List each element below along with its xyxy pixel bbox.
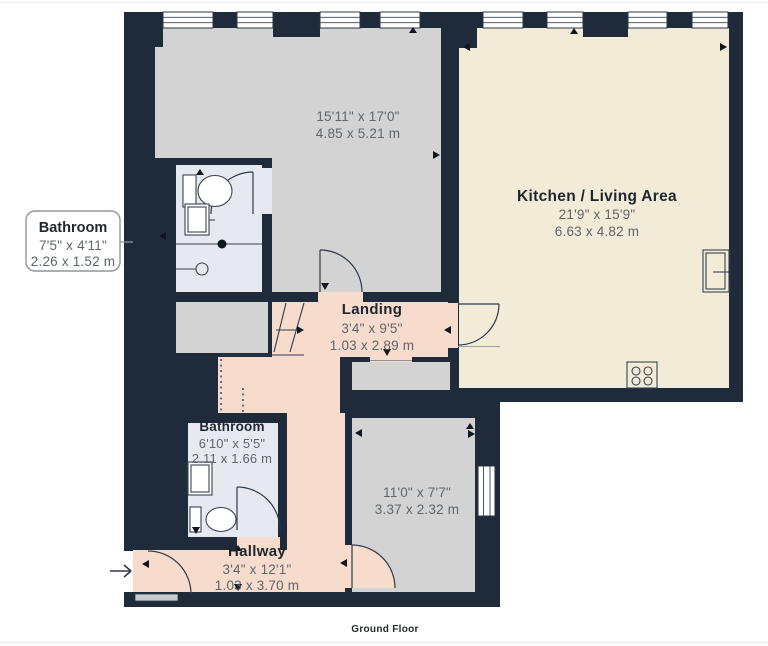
room-dims-metric: 6.63 x 4.82 m bbox=[555, 224, 639, 239]
alcove-opening bbox=[370, 357, 412, 362]
stair-corridor bbox=[218, 357, 340, 413]
room-title: Kitchen / Living Area bbox=[517, 188, 677, 205]
window-icon bbox=[163, 12, 213, 28]
room-title: Hallway bbox=[228, 543, 286, 560]
floor-plan-viewport: Bathroom 7'5" x 4'11" 2.26 x 1.52 m 15'1… bbox=[0, 0, 768, 646]
wall-pier bbox=[583, 28, 628, 37]
room-dims-metric: 4.85 x 5.21 m bbox=[316, 126, 400, 141]
callout-dims-imperial: 7'5" x 4'11" bbox=[39, 238, 107, 253]
window-icon bbox=[320, 12, 360, 28]
room-dims-imperial: 3'4" x 9'5" bbox=[341, 321, 402, 336]
landing-label: Landing 3'4" x 9'5" 1.03 x 2.89 m bbox=[330, 301, 414, 353]
floor-title: Ground Floor bbox=[351, 624, 418, 635]
toilet-symbol bbox=[183, 175, 232, 207]
room-dims-imperial: 21'9" x 15'9" bbox=[559, 207, 636, 222]
window-icon bbox=[547, 12, 583, 28]
entry-threshold bbox=[135, 594, 178, 601]
corridor bbox=[287, 413, 345, 550]
room-dims-metric: 3.37 x 2.32 m bbox=[375, 502, 459, 517]
room-dims-imperial: 6'10" x 5'5" bbox=[199, 436, 266, 451]
room-dims-metric: 1.03 x 2.89 m bbox=[330, 338, 414, 353]
callout-title: Bathroom bbox=[39, 220, 107, 236]
room-dims-imperial: 11'0" x 7'7" bbox=[383, 485, 451, 500]
window-icon bbox=[692, 12, 728, 28]
room-dims-imperial: 15'11" x 17'0" bbox=[316, 109, 399, 124]
wall-pier bbox=[441, 12, 477, 48]
window-icon bbox=[628, 12, 667, 28]
storage-alcove bbox=[352, 362, 450, 390]
floor-plan-svg: Bathroom 7'5" x 4'11" 2.26 x 1.52 m 15'1… bbox=[0, 0, 768, 646]
wall-pier bbox=[273, 28, 320, 37]
room-dims-metric: 2.11 x 1.66 m bbox=[192, 451, 272, 466]
room-dims-metric: 1.03 x 3.70 m bbox=[215, 578, 299, 593]
callout-dims-metric: 2.26 x 1.52 m bbox=[31, 254, 115, 269]
window-icon bbox=[380, 12, 420, 28]
sink-symbol bbox=[188, 462, 212, 495]
room-dims-imperial: 3'4" x 12'1" bbox=[223, 562, 292, 577]
room-title: Landing bbox=[342, 301, 402, 318]
window-icon bbox=[483, 12, 523, 28]
room-title: Bathroom bbox=[199, 419, 264, 434]
closet-area bbox=[176, 302, 268, 353]
window-icon bbox=[478, 466, 495, 516]
window-icon bbox=[237, 12, 273, 28]
bathroom-callout: Bathroom 7'5" x 4'11" 2.26 x 1.52 m bbox=[26, 211, 133, 271]
bathroom-lower-label: Bathroom 6'10" x 5'5" 2.11 x 1.66 m bbox=[192, 419, 272, 466]
